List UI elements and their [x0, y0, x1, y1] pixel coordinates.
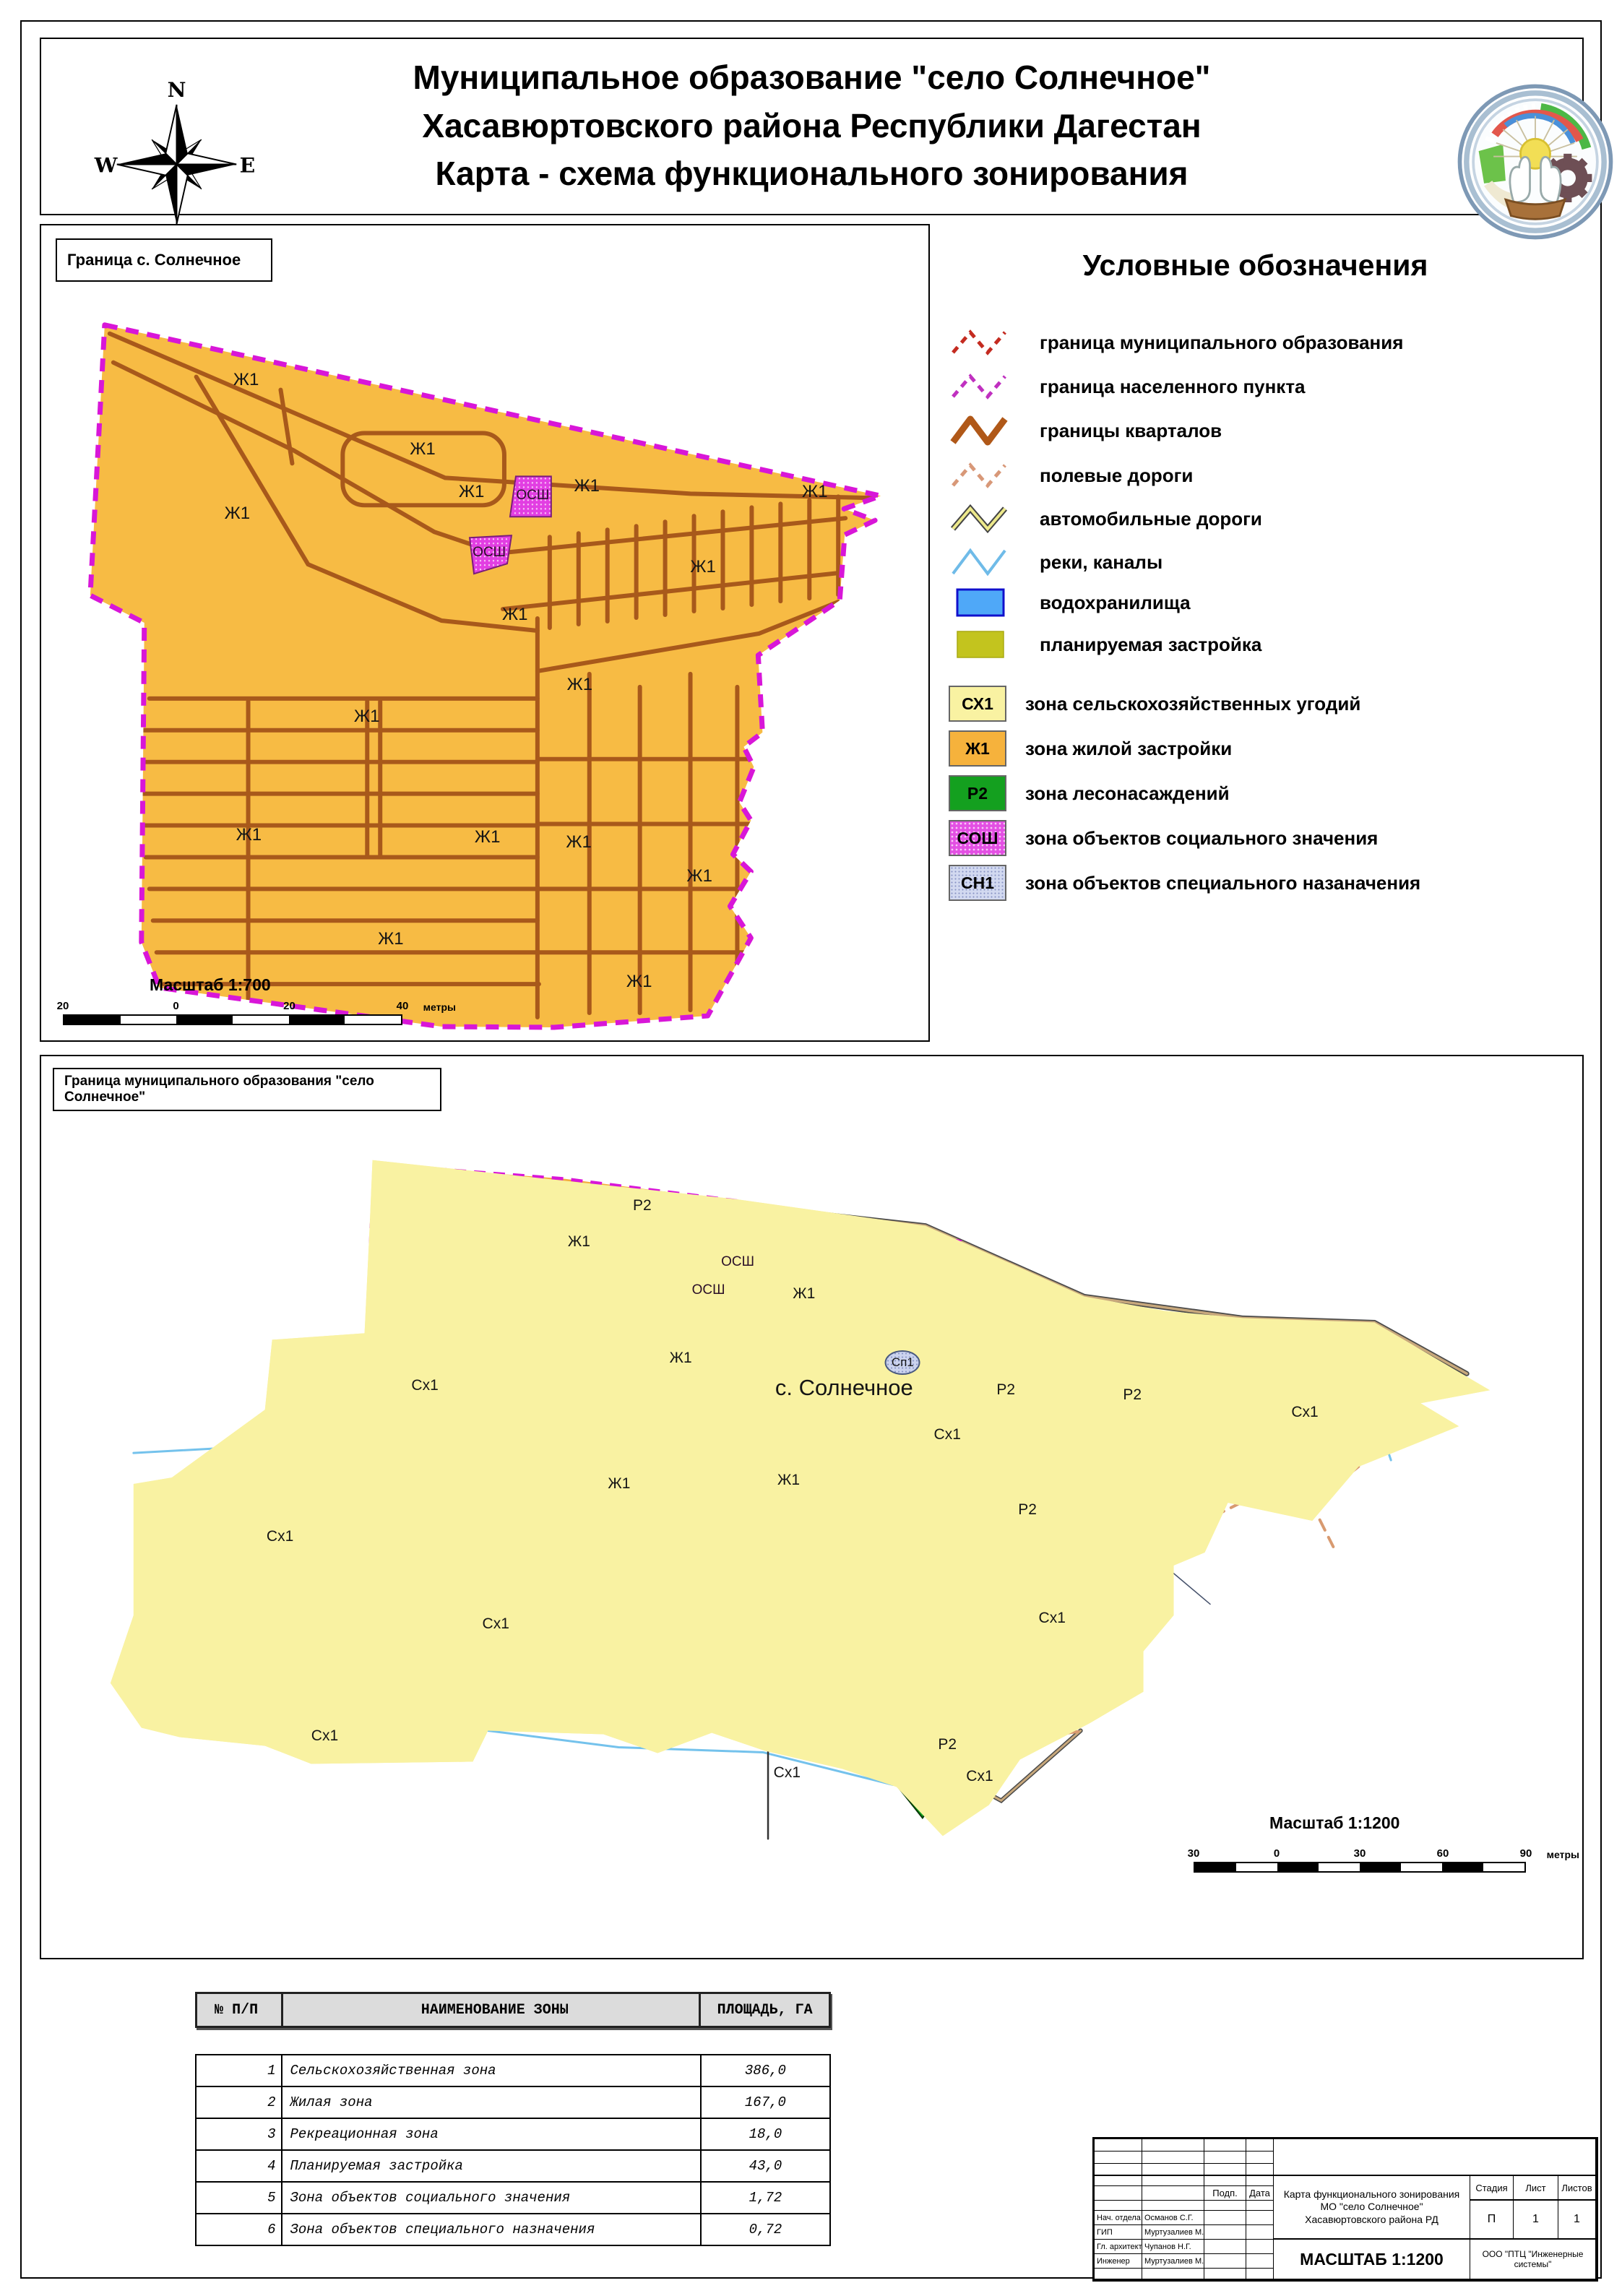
quarter-borders-symbol-icon — [949, 413, 1021, 448]
legend-item-label: граница муниципального образования — [1040, 332, 1403, 354]
legend-item-settlement-boundary: граница населенного пункта — [949, 368, 1306, 405]
table-row: 3 Рекреационная зона 18,0 — [197, 2119, 829, 2151]
legend-item-label: границы кварталов — [1040, 420, 1222, 442]
table-header-area: ПЛОЩАДЬ, ГА — [701, 1994, 829, 2026]
legend-zone-sx1: СХ1 зона сельскохозяйственных угодий — [949, 685, 1360, 722]
legend-item-municipal-boundary: граница муниципального образования — [949, 324, 1403, 361]
stamp-doc-title: Карта функционального зонирования МО "се… — [1274, 2176, 1470, 2240]
tick: 30 — [1188, 1847, 1200, 1860]
stamp-data-header: Дата — [1246, 2186, 1274, 2201]
tick: 30 — [1354, 1847, 1366, 1860]
upper-scale-label: Масштаб 1:700 — [150, 975, 271, 995]
tick: 20 — [57, 1000, 69, 1012]
legend-zone-sn1: СН1 зона объектов специального назаначен… — [949, 864, 1420, 902]
table-header-num: № П/П — [197, 1994, 283, 2026]
legend-title: Условные обозначения — [936, 249, 1575, 282]
title-line-2: Хасавюртовского района Республики Дагест… — [287, 102, 1337, 150]
upper-map-caption: Граница с. Солнечное — [56, 238, 272, 282]
stamp-organization: ООО "ПТЦ "Инженерные системы" — [1470, 2240, 1596, 2279]
lower-map-panel: Р2Ж1ОСШОСШЖ1Ж1Сх1Сп1с. СолнечноеР2Р2Сх1С… — [40, 1055, 1584, 1959]
title-line-3: Карта - схема функционального зонировани… — [287, 150, 1337, 198]
tick: 90 — [1520, 1847, 1532, 1860]
legend-item-label: планируемая застройка — [1040, 634, 1261, 656]
lower-map-caption-text: Граница муниципального образования "село… — [64, 1074, 430, 1105]
legend-item-auto-roads: автомобильные дороги — [949, 500, 1262, 538]
compass-e: E — [240, 152, 256, 177]
compass-n: N — [168, 79, 186, 102]
table-row: 2 Жилая зона 167,0 — [197, 2087, 829, 2119]
legend-zone-r2: Р2 зона лесонасаждений — [949, 774, 1230, 812]
legend-item-reservoirs: водохранилища — [949, 584, 1191, 621]
legend-zone-label: зона объектов специального назаначения — [1025, 872, 1420, 894]
legend-zone-label: зона жилой застройки — [1025, 738, 1232, 760]
table-body: 1 Сельскохозяйственная зона 386,0 2 Жила… — [195, 2054, 831, 2246]
stamp-stage-header: Стадия — [1470, 2176, 1514, 2201]
title-block: Подп. Дата Нач. отдела Османов С.Г. ГИП … — [1092, 2137, 1598, 2282]
reservoirs-symbol-icon — [949, 585, 1021, 620]
legend-zone-sosh: СОШ зона объектов социального значения — [949, 819, 1378, 857]
lower-map-caption: Граница муниципального образования "село… — [53, 1068, 441, 1111]
auto-roads-symbol-icon — [949, 501, 1021, 536]
stamp-podp-header: Подп. — [1204, 2186, 1246, 2201]
district-emblem-icon — [1454, 81, 1616, 243]
rivers-symbol-icon — [949, 545, 1021, 579]
stamp-role: ГИП — [1095, 2225, 1142, 2240]
legend-zone-zh1: Ж1 зона жилой застройки — [949, 730, 1232, 767]
stamp-name: Муртузалиев М.Х. — [1142, 2254, 1204, 2269]
legend-item-label: реки, каналы — [1040, 551, 1162, 574]
tick: 0 — [173, 1000, 178, 1012]
page-title: Муниципальное образование "село Солнечно… — [287, 53, 1337, 198]
zone-swatch-sx1: СХ1 — [949, 686, 1006, 722]
zone-area-table: № П/П НАИМЕНОВАНИЕ ЗОНЫ ПЛОЩАДЬ, ГА 1 Се… — [195, 1992, 831, 2246]
tick: 0 — [1274, 1847, 1280, 1860]
legend-item-label: автомобильные дороги — [1040, 508, 1262, 530]
stamp-sheets-value: 1 — [1558, 2201, 1596, 2240]
table-row: 4 Планируемая застройка 43,0 — [197, 2151, 829, 2183]
scale-unit: метры — [1547, 1849, 1579, 1860]
legend-item-rivers: реки, каналы — [949, 543, 1162, 581]
lower-scale-label: Масштаб 1:1200 — [1269, 1813, 1399, 1833]
stamp-role: Инженер — [1095, 2254, 1142, 2269]
legend-item-label: полевые дороги — [1040, 465, 1193, 487]
table-row: 6 Зона объектов специального назначения … — [197, 2214, 829, 2245]
field-roads-symbol-icon — [949, 458, 1021, 493]
upper-scalebar: 20 0 20 40 метры — [63, 1000, 402, 1032]
tick: 60 — [1437, 1847, 1449, 1860]
zone-swatch-sosh: СОШ — [949, 820, 1006, 856]
scale-unit: метры — [423, 1001, 456, 1013]
stamp-name: Османов С.Г. — [1142, 2211, 1204, 2225]
stamp-name: Муртузалиев М.Х. — [1142, 2225, 1204, 2240]
zone-swatch-r2: Р2 — [949, 775, 1006, 811]
table-header-row: № П/П НАИМЕНОВАНИЕ ЗОНЫ ПЛОЩАДЬ, ГА — [195, 1992, 831, 2028]
table-row: 1 Сельскохозяйственная зона 386,0 — [197, 2055, 829, 2087]
settlement-boundary-symbol-icon — [949, 369, 1021, 404]
stamp-name: Чупанов Н.Г. — [1142, 2240, 1204, 2254]
legend-item-label: граница населенного пункта — [1040, 376, 1306, 398]
stamp-sheet-value: 1 — [1514, 2201, 1558, 2240]
legend-zone-label: зона сельскохозяйственных угодий — [1025, 693, 1360, 715]
stamp-scale: МАСШТАБ 1:1200 — [1274, 2240, 1470, 2279]
tick: 20 — [283, 1000, 296, 1012]
municipal-boundary-symbol-icon — [949, 325, 1021, 360]
stamp-sheets-header: Листов — [1558, 2176, 1596, 2201]
planned-development-symbol-icon — [949, 627, 1021, 662]
stamp-role: Нач. отдела — [1095, 2211, 1142, 2225]
legend-zone-label: зона лесонасаждений — [1025, 782, 1230, 805]
table-header-name: НАИМЕНОВАНИЕ ЗОНЫ — [283, 1994, 701, 2026]
stamp-sheet-header: Лист — [1514, 2176, 1558, 2201]
stamp-role: Гл. архитект. — [1095, 2240, 1142, 2254]
upper-map-svg — [41, 225, 928, 1040]
lower-scalebar: 30 0 30 60 90 метры — [1194, 1847, 1526, 1879]
legend-item-field-roads: полевые дороги — [949, 457, 1193, 494]
header: N S W E Муниципальное образование "село … — [40, 38, 1584, 215]
legend-item-quarter-borders: границы кварталов — [949, 412, 1222, 449]
stamp-stage-value: П — [1470, 2201, 1514, 2240]
upper-map-caption-text: Граница с. Солнечное — [67, 251, 241, 269]
title-line-1: Муниципальное образование "село Солнечно… — [287, 53, 1337, 102]
map-sheet: N S W E Муниципальное образование "село … — [0, 0, 1622, 2296]
zone-swatch-zh1: Ж1 — [949, 730, 1006, 767]
legend-item-label: водохранилища — [1040, 592, 1191, 614]
upper-map-panel: Ж1Ж1Ж1Ж1Ж1Ж1Ж1Ж1Ж1Ж1Ж1Ж1Ж1Ж1Ж1Ж1ОСШОСШ Г… — [40, 224, 930, 1042]
legend-item-planned-development: планируемая застройка — [949, 626, 1261, 663]
tick: 40 — [397, 1000, 409, 1012]
table-row: 5 Зона объектов социального значения 1,7… — [197, 2183, 829, 2214]
legend: Условные обозначения граница муниципальн… — [936, 238, 1597, 918]
legend-zone-label: зона объектов социального значения — [1025, 827, 1378, 850]
stamp-top-band — [1274, 2139, 1596, 2176]
compass-w: W — [94, 152, 118, 177]
zone-swatch-sn1: СН1 — [949, 865, 1006, 901]
